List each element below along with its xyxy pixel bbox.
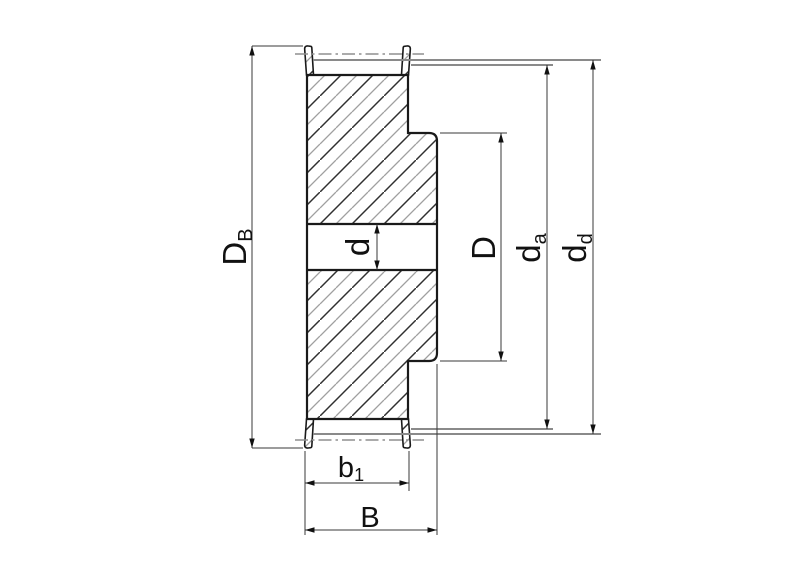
- dim-label-bore-diameter: d: [339, 238, 376, 256]
- pulley-section-drawing: DB d D da dd b1 B: [0, 0, 800, 565]
- drawing-svg: DB d D da dd b1 B: [0, 0, 800, 565]
- flange-top-left: [305, 46, 314, 75]
- dim-label-overall-width: B: [360, 502, 379, 534]
- flange-bottom-left: [305, 419, 314, 448]
- dim-label-step-diameter: D: [465, 236, 502, 260]
